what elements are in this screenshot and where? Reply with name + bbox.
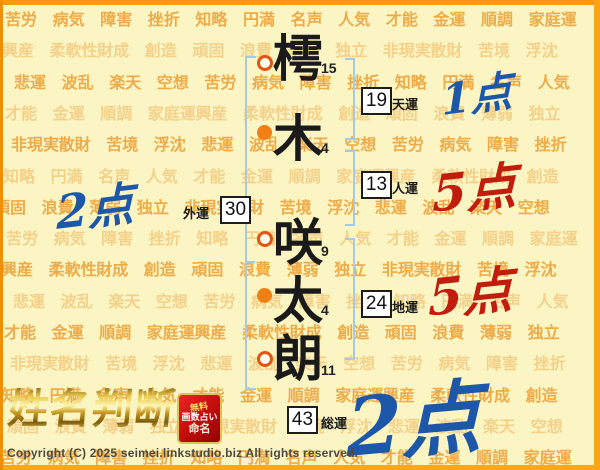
bg-word: 順調 [482,225,514,249]
bg-word: 病気 [53,6,85,30]
bg-word: 挫折 [149,225,181,249]
earth-luck-value: 24 [361,290,392,318]
bg-word: 頑固 [385,319,417,343]
earth-luck-bracket [345,238,355,360]
seimei-result-page: 苦労病気障害挫折知略円満名声人気才能金運順調家庭運興産柔軟性財成創造頑固浪費薄弱… [0,0,600,470]
bg-word: 知略 [395,69,427,93]
name-char-2: 木 [268,114,328,164]
bg-word: 人気 [538,69,570,93]
bg-word: 知略 [195,6,227,30]
bg-word: 挫折 [535,131,567,155]
bg-word: 順調 [99,319,131,343]
frame-border-bottom [0,465,600,470]
bg-word: 独立 [528,319,560,343]
bg-word: 財成 [97,37,129,61]
bg-word: 独立 [137,194,169,218]
stroke-count-4: 4 [321,302,329,318]
bg-word: 興産 [194,319,226,343]
bg-word: 浮沈 [525,256,557,280]
stroke-count-1: 15 [321,60,337,76]
total-luck-label: 総運 [321,413,347,432]
bg-word: 創造 [527,163,559,187]
bg-word: 才能 [4,319,36,343]
bg-word: 名声 [291,6,323,30]
bg-word: 創造 [144,256,176,280]
bg-word: 空想 [156,288,188,312]
bg-word: 順調 [100,100,132,124]
bg-word: 苦労 [203,288,235,312]
badge-line-2: 画数占い [181,412,217,422]
bg-word: 非現実 [11,131,59,155]
earth-luck-label: 地運 [392,297,418,316]
bg-word: 人気 [339,225,371,249]
bg-word: 散財 [430,37,462,61]
bg-word: 散財 [58,350,90,374]
total-luck-value: 43 [287,406,318,434]
bg-word: 浮沈 [153,350,185,374]
bg-word: 才能 [193,163,225,187]
bg-word: 知略 [3,163,35,187]
outer-luck-label: 外運 [183,203,209,222]
heaven-luck-label: 天運 [392,94,418,113]
bg-word: 興産 [2,37,34,61]
bg-word: 障害 [486,350,518,374]
bg-word: 創造 [526,382,558,406]
bg-word: 挫折 [534,350,566,374]
copyright-text: Copyright (C) 2025 seimei.linkstudio.biz… [7,446,358,460]
bg-word: 金運 [52,319,84,343]
bg-word: 人気 [338,6,370,30]
bg-word: 楽天 [483,413,515,437]
name-char-3: 咲 [268,218,328,268]
bg-word: 家庭運 [148,100,196,124]
bg-word: 人気 [537,288,569,312]
bg-word: 苦労 [204,69,236,93]
bg-word: 挫折 [148,6,180,30]
heaven-luck-value: 19 [361,87,392,115]
bg-word: 興産 [1,256,33,280]
bg-word: 家庭運 [147,319,195,343]
heaven-luck-score: 1点 [440,57,513,128]
bg-word: 金運 [53,100,85,124]
bg-word: 苦労 [5,6,37,30]
bg-word: 非現実 [383,37,431,61]
bg-word: 知略 [196,225,228,249]
total-luck-score: 2点 [345,352,482,470]
outer-luck-value: 30 [220,196,251,224]
bg-word: 頑固 [191,256,223,280]
bg-word: 悲運 [14,69,46,93]
bg-word: 苦労 [6,225,38,249]
person-luck-label: 人運 [392,178,418,197]
bg-word: 頑固 [0,194,26,218]
bg-word: 順調 [481,6,513,30]
name-char-1: 樗 [268,34,328,84]
bg-word: 金運 [433,6,465,30]
stroke-count-2: 4 [321,140,329,156]
bg-word: 苦境 [106,131,138,155]
person-luck-value: 13 [361,171,392,199]
name-char-5: 朗 [268,334,328,384]
bg-word: 悲運 [13,288,45,312]
bg-word: 空想 [518,194,550,218]
bg-word: 円満 [243,6,275,30]
bg-word: 財成 [478,382,510,406]
bg-word: 浮沈 [526,37,558,61]
bg-word: 家庭運 [529,6,577,30]
bg-word: 浮沈 [154,131,186,155]
bg-word: 楽天 [108,288,140,312]
person-luck-score: 5点 [432,145,516,226]
bg-word: 波乱 [61,288,93,312]
bg-word: 金運 [434,225,466,249]
earth-luck-score: 5点 [428,249,512,330]
bg-word: 波乱 [62,69,94,93]
frame-border-top [0,0,600,5]
bg-word: 人気 [146,163,178,187]
bg-word: 空想 [157,69,189,93]
person-luck-bracket [345,150,355,226]
bg-word: 苦境 [105,350,137,374]
outer-luck-bracket-tick [247,261,255,263]
bg-word: 悲運 [200,350,232,374]
bg-word: 頑固 [192,37,224,61]
bg-word: 才能 [387,225,419,249]
free-naming-badge: 無料 画数占い 命名 [177,393,222,444]
bg-word: 楽天 [109,69,141,93]
bg-word: 柔軟性 [50,37,98,61]
bg-word: 散財 [59,131,91,155]
frame-border-right [594,0,600,470]
outer-luck-score: 2点 [56,167,135,243]
stroke-count-5: 11 [321,362,336,378]
bg-word: 非現実 [382,256,430,280]
bg-word: 障害 [100,6,132,30]
bg-word: 興産 [195,100,227,124]
badge-line-3: 命名 [189,423,211,436]
bg-word: 財成 [96,256,128,280]
stroke-count-3: 9 [321,243,329,259]
bg-word: 空想 [531,413,563,437]
frame-border-left [0,0,3,470]
heaven-luck-bracket [345,58,355,140]
bg-word: 才能 [5,100,37,124]
bg-word: 才能 [386,6,418,30]
name-char-4: 太 [268,276,328,326]
bg-word: 非現実 [10,350,58,374]
bg-word: 苦労 [392,131,424,155]
bg-word: 柔軟性 [49,256,97,280]
bg-word: 悲運 [201,131,233,155]
site-logo: 姓名判断 [6,386,179,432]
bg-word: 創造 [145,37,177,61]
bg-word: 独立 [529,100,561,124]
bg-word: 家庭運 [530,225,578,249]
bg-word: 散財 [245,413,277,437]
